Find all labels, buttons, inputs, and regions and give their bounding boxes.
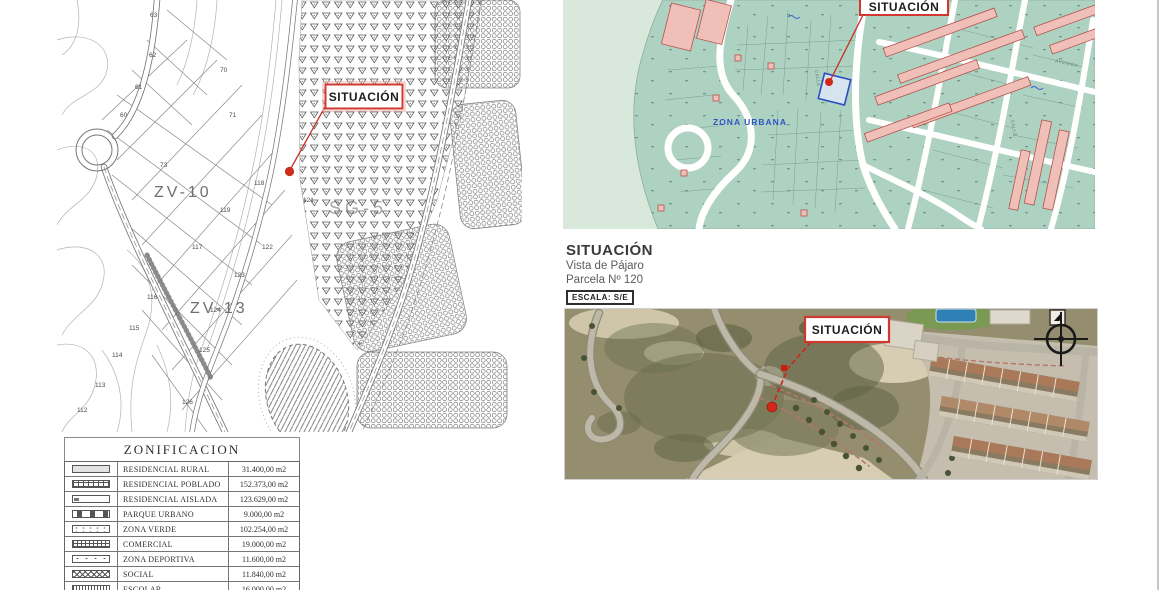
- svg-text:125: 125: [199, 347, 210, 354]
- svg-text:114: 114: [112, 352, 123, 359]
- svg-text:122: 122: [262, 244, 273, 251]
- svg-text:119: 119: [220, 207, 231, 214]
- location-marker-dot: [825, 78, 833, 86]
- legend-row: PARQUE URBANO 9.000,00 m2: [65, 507, 299, 522]
- svg-text:126: 126: [182, 399, 193, 406]
- info-title: SITUACIÓN: [566, 242, 653, 259]
- target-parcel-outline: [818, 73, 850, 105]
- parcel-grid: [102, 10, 297, 432]
- legend-swatch-escolar: [72, 585, 110, 590]
- legend-row: SOCIAL 11.840,00 m2: [65, 567, 299, 582]
- svg-text:71: 71: [229, 112, 237, 119]
- location-marker-dot: [767, 402, 777, 412]
- zona-urbana-label: ZONA URBANA: [713, 117, 787, 127]
- svg-text:70: 70: [220, 67, 228, 74]
- legend-table: RESIDENCIAL RURAL 31.400,00 m2 RESIDENCI…: [64, 461, 300, 590]
- svg-text:62: 62: [149, 52, 157, 59]
- legend-swatch-social: [72, 570, 110, 578]
- legend-row: ZONA VERDE 102.254,00 m2: [65, 522, 299, 537]
- svg-text:113: 113: [95, 382, 106, 389]
- location-marker-dot: [285, 167, 294, 176]
- legend-swatch-rural: [72, 465, 110, 473]
- aerial-photo: SITUACIÓN: [564, 308, 1098, 480]
- plan-sheet: SG-5: [0, 0, 1165, 590]
- zone-label-zv13: ZV-13: [190, 300, 248, 317]
- legend-row: RESIDENCIAL POBLADO 152.373,00 m2: [65, 477, 299, 492]
- legend-swatch-verde: [72, 525, 110, 533]
- svg-text:73: 73: [160, 162, 168, 169]
- legend-swatch-comercial: [72, 540, 110, 548]
- legend-row: ZONA DEPORTIVA 11.600,00 m2: [65, 552, 299, 567]
- situacion-label: SITUACIÓN: [812, 322, 883, 337]
- svg-text:116: 116: [147, 294, 158, 301]
- svg-text:117: 117: [192, 244, 203, 251]
- legend-row: RESIDENCIAL AISLADA 123.629,00 m2: [65, 492, 299, 507]
- situacion-label: SITUACIÓN: [329, 89, 400, 104]
- cadastral-map: CALLE CALLE CALLE AVENIDA Z: [563, 0, 1095, 229]
- svg-text:60: 60: [120, 112, 128, 119]
- legend-row: ESCOLAR 16.000,00 m2: [65, 582, 299, 590]
- legend-row: RESIDENCIAL RURAL 31.400,00 m2: [65, 462, 299, 477]
- legend-title: ZONIFICACION: [64, 437, 300, 461]
- situacion-label: SITUACIÓN: [869, 0, 940, 14]
- contour-lines: [57, 0, 282, 432]
- legend-swatch-deportiva: [72, 555, 110, 563]
- legend-swatch-parque: [72, 510, 110, 518]
- svg-text:63: 63: [150, 12, 158, 19]
- info-subtitle: Vista de Pájaro: [566, 259, 653, 273]
- legend-swatch-poblado: [72, 480, 110, 488]
- svg-text:123: 123: [234, 272, 245, 279]
- svg-text:118: 118: [254, 180, 265, 187]
- svg-text:115: 115: [129, 325, 140, 332]
- legend-swatch-aislada: [72, 495, 110, 503]
- plan-map: SG-5: [57, 0, 522, 432]
- page-right-border: [1157, 0, 1159, 590]
- swimming-pool: [936, 309, 976, 322]
- info-parcel: Parcela Nº 120: [566, 273, 653, 287]
- legend-row: COMERCIAL 19.000,00 m2: [65, 537, 299, 552]
- situacion-info: SITUACIÓN Vista de Pájaro Parcela Nº 120…: [566, 242, 653, 305]
- svg-text:112: 112: [77, 407, 88, 414]
- svg-text:121: 121: [303, 197, 314, 204]
- escala-badge: ESCALA: S/E: [566, 290, 634, 305]
- zone-label-zv10: ZV-10: [154, 184, 212, 201]
- svg-text:61: 61: [135, 84, 143, 91]
- zoning-legend: ZONIFICACION RESIDENCIAL RURAL 31.400,00…: [64, 437, 300, 590]
